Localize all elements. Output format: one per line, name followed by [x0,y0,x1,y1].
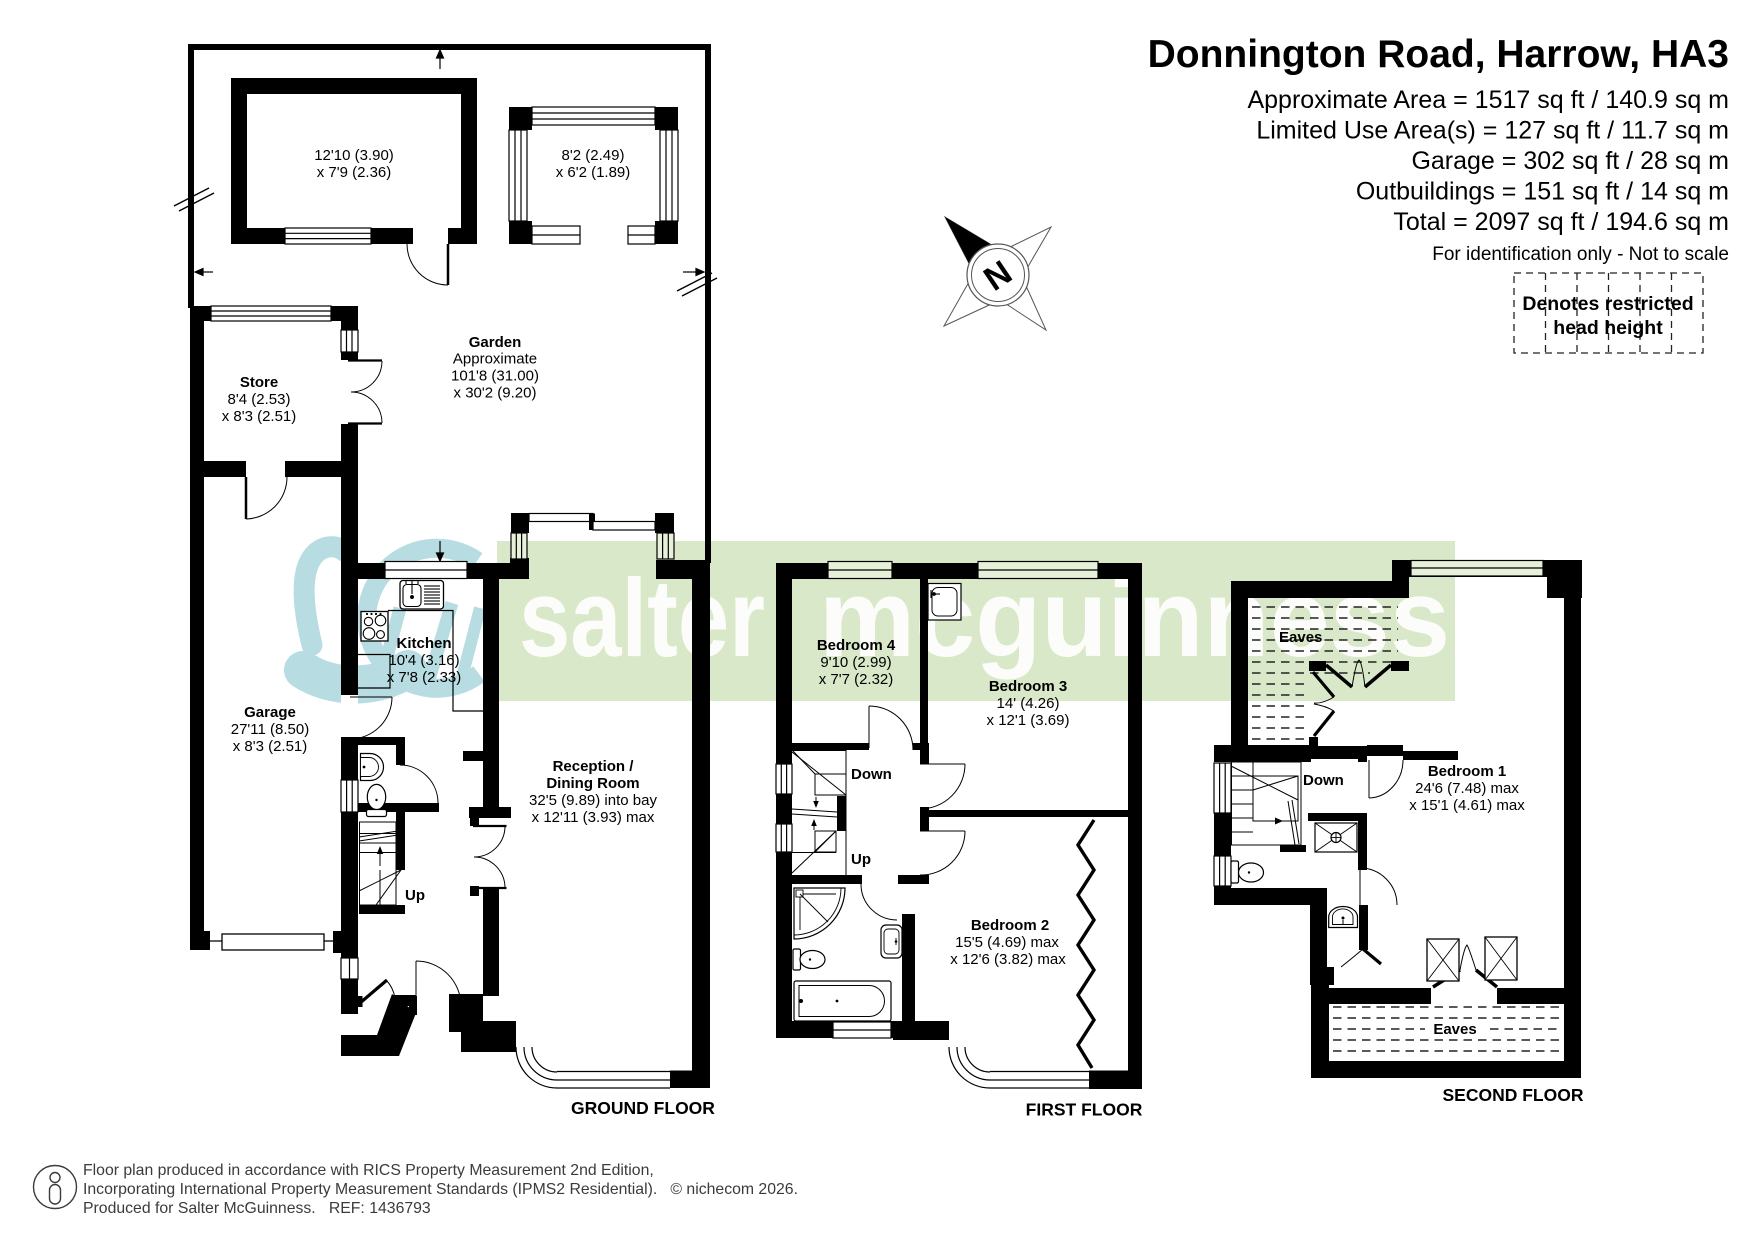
svg-text:SECOND FLOOR: SECOND FLOOR [1443,1085,1584,1105]
svg-text:Total = 2097 sq ft / 194.6 sq: Total = 2097 sq ft / 194.6 sq m [1393,208,1729,236]
svg-text:32'5 (9.89) into bay: 32'5 (9.89) into bay [529,792,657,809]
svg-text:Down: Down [851,766,892,783]
svg-text:x 6'2 (1.89): x 6'2 (1.89) [556,164,631,181]
svg-text:Approximate Area = 1517 sq ft: Approximate Area = 1517 sq ft / 140.9 sq… [1247,86,1729,114]
svg-text:head height: head height [1553,317,1663,339]
svg-text:101'8 (31.00): 101'8 (31.00) [451,368,539,385]
svg-text:12'10 (3.90): 12'10 (3.90) [314,147,394,164]
svg-text:x 30'2 (9.20): x 30'2 (9.20) [454,385,537,402]
svg-text:x 7'7 (2.32): x 7'7 (2.32) [819,671,894,688]
svg-text:Eaves: Eaves [1279,629,1322,646]
svg-text:x 7'9 (2.36): x 7'9 (2.36) [317,164,392,181]
svg-text:Limited Use Area(s) = 127 sq f: Limited Use Area(s) = 127 sq ft / 11.7 s… [1256,117,1729,145]
svg-text:Approximate: Approximate [453,351,537,368]
svg-text:15'5 (4.69) max: 15'5 (4.69) max [955,934,1059,951]
svg-text:salter: salter [519,557,765,680]
svg-text:10'4 (3.16): 10'4 (3.16) [388,652,459,669]
svg-text:Garage: Garage [244,704,296,721]
svg-text:x 15'1 (4.61) max: x 15'1 (4.61) max [1409,797,1525,814]
svg-text:Kitchen: Kitchen [396,635,451,652]
svg-text:For identification only - Not: For identification only - Not to scale [1432,244,1729,265]
svg-text:x 8'3 (2.51): x 8'3 (2.51) [222,408,297,425]
svg-text:Bedroom 3: Bedroom 3 [989,678,1067,695]
svg-text:x 12'1 (3.69): x 12'1 (3.69) [987,712,1070,729]
svg-text:x 8'3 (2.51): x 8'3 (2.51) [233,738,308,755]
svg-text:Produced for Salter McGuinness: Produced for Salter McGuinness. REF: 143… [83,1200,431,1217]
svg-text:Dining Room: Dining Room [546,775,639,792]
svg-text:Donnington Road, Harrow, HA3: Donnington Road, Harrow, HA3 [1148,33,1729,76]
svg-text:9'10 (2.99): 9'10 (2.99) [820,654,891,671]
svg-text:24'6 (7.48) max: 24'6 (7.48) max [1415,780,1519,797]
svg-text:x 7'8 (2.33): x 7'8 (2.33) [387,669,462,686]
svg-text:27'11 (8.50): 27'11 (8.50) [231,721,309,738]
svg-text:FIRST FLOOR: FIRST FLOOR [1026,1100,1143,1120]
svg-text:x 12'11 (3.93) max: x 12'11 (3.93) max [532,809,655,826]
svg-text:8'2 (2.49): 8'2 (2.49) [562,147,625,164]
svg-text:Outbuildings = 151 sq ft / 14: Outbuildings = 151 sq ft / 14 sq m [1356,178,1729,206]
svg-text:14' (4.26): 14' (4.26) [997,695,1060,712]
svg-text:Down: Down [1303,772,1344,789]
svg-text:x 12'6 (3.82) max: x 12'6 (3.82) max [950,951,1066,968]
svg-text:Garage = 302 sq ft / 28 sq m: Garage = 302 sq ft / 28 sq m [1411,147,1729,175]
svg-text:Eaves: Eaves [1433,1021,1476,1038]
svg-text:Reception /: Reception / [553,758,635,775]
svg-text:Bedroom 1: Bedroom 1 [1428,763,1506,780]
svg-text:Bedroom 4: Bedroom 4 [817,637,896,654]
svg-text:Incorporating International Pr: Incorporating International Property Mea… [83,1181,798,1198]
svg-text:Up: Up [851,851,871,868]
svg-text:Garden: Garden [469,334,522,351]
svg-text:Denotes restricted: Denotes restricted [1522,293,1693,315]
svg-text:Store: Store [240,374,278,391]
svg-text:Bedroom 2: Bedroom 2 [971,917,1049,934]
svg-text:Up: Up [405,887,425,904]
svg-text:Floor plan produced in accorda: Floor plan produced in accordance with R… [83,1162,654,1179]
svg-text:GROUND FLOOR: GROUND FLOOR [571,1098,715,1118]
svg-text:8'4 (2.53): 8'4 (2.53) [228,391,291,408]
